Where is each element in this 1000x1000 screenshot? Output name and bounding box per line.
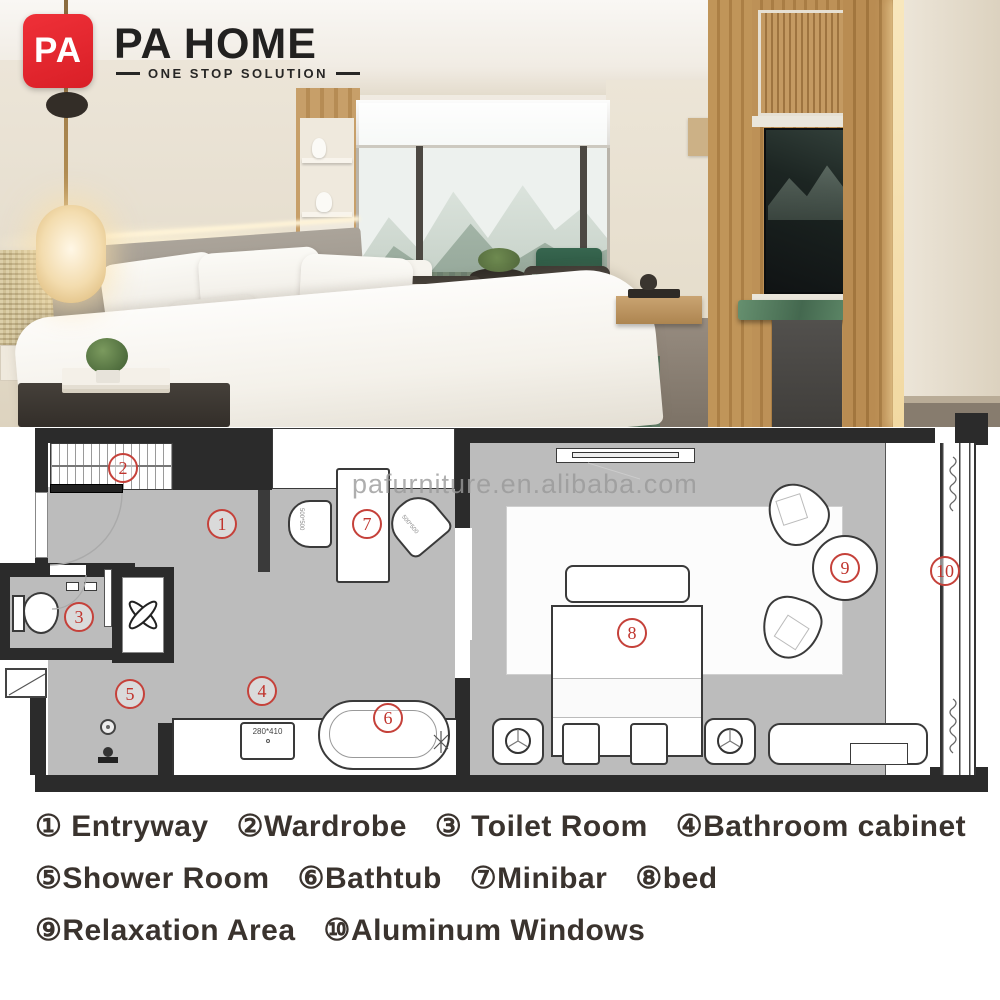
wall-bottom [35,775,940,792]
tagline-dash [336,72,360,75]
floor-shower-head [103,747,113,757]
legend-row-2: ⑤Shower Room ⑥Bathtub ⑦Minibar ⑧bed [35,861,1000,896]
wood-column [843,0,893,427]
wall-top-left [35,428,272,443]
chair-pillow-plan [775,493,808,526]
tv-plan [572,452,679,458]
decor-vase [312,138,326,158]
plan-badge-5: 5 [115,679,145,709]
tea-shelf [616,296,702,324]
brand-tagline-row: ONE STOP SOLUTION [116,66,360,81]
shower-interior [122,577,164,653]
legend-item-aluminum-windows: ⑩Aluminum Windows [324,913,646,948]
legend: ① Entryway ②Wardrobe ③ Toilet Room ④Bath… [0,797,1000,1000]
sink-plan: 280*410 [240,722,295,760]
brand-logo: PA [23,14,93,88]
floor-drain [100,719,116,735]
plan-badge-8: 8 [617,618,647,648]
toilet-shelf-item [66,582,79,591]
legend-item-bathtub: ⑥Bathtub [298,861,442,896]
chair-size-label: 500*500 [400,514,419,535]
bench-tray-plan [850,743,908,765]
sink-drain [266,739,270,743]
passage-opening [455,528,472,640]
plan-badge-10: 10 [930,556,960,586]
shelf-ledge [302,158,352,163]
kettle [640,274,657,290]
decor-vase [316,192,332,212]
toilet-shelf-item [84,582,97,591]
brand-tagline: ONE STOP SOLUTION [148,66,328,81]
legend-row-1: ① Entryway ②Wardrobe ③ Toilet Room ④Bath… [35,809,1000,844]
legend-item-bed: ⑧bed [635,861,717,896]
plan-badge-1: 1 [207,509,237,539]
plan-badge-6: 6 [373,703,403,733]
drain-center [106,725,110,729]
legend-row-3: ⑨Relaxation Area ⑩Aluminum Windows [35,913,1000,948]
minibar-fridge [772,320,842,427]
plan-badge-4: 4 [247,676,277,706]
minibar-chair: 500*500 [288,500,332,548]
shower-head-base [98,757,118,763]
right-wall [904,0,1000,427]
pendant-lamp-canopy [46,92,88,118]
bed-pillow-plan [630,723,668,765]
chair-size-label: 500*500 [298,508,304,530]
aluminum-window-plan [940,443,976,775]
tea-tray [628,289,680,298]
roller-shade [356,100,610,148]
wall-niche [5,668,47,698]
nightstand-plan [492,718,544,765]
wall-left-lower [30,698,46,775]
closet-block [173,443,272,490]
legend-item-shower-room: ⑤Shower Room [35,861,270,896]
partition-wall-lower [455,678,470,775]
entry-door-opening [35,492,48,558]
plant-pot [96,370,120,383]
table-plant [478,248,520,272]
nightstand-plan [704,718,756,765]
logo-monogram: PA [34,31,82,71]
plan-badge-9: 9 [830,553,860,583]
potted-plant [86,338,128,374]
legend-item-relaxation-area: ⑨Relaxation Area [35,913,296,948]
nightstand [18,383,230,427]
led-light-strip [893,0,904,427]
wall-top-right [455,428,935,443]
plan-badge-7: 7 [352,509,382,539]
product-image: PA PA HOME ONE STOP SOLUTION [0,0,1000,1000]
legend-item-minibar: ⑦Minibar [470,861,608,896]
legend-item-entryway: ① Entryway [35,809,209,844]
tagline-dash [116,72,140,75]
toilet-room-left-wall [0,563,10,657]
bed-sheet-fold [553,678,701,718]
brand-name: PA HOME [114,20,514,69]
bed-bench-plan [565,565,690,603]
watermark: pafurniture.en.alibaba.com [352,469,698,500]
sink-size-label: 280*410 [242,727,293,736]
entry-door-leaf [50,484,123,493]
plan-badge-3: 3 [64,602,94,632]
chair-pillow-plan [774,614,810,650]
baseboard [904,396,1000,403]
floor-plan: 500*500 500*500 [0,427,1000,795]
toilet-door-opening [50,565,86,575]
legend-item-bathroom-cabinet: ④Bathroom cabinet [676,809,966,844]
legend-item-toilet-room: ③ Toilet Room [435,809,648,844]
wall-left-upper [35,428,48,492]
bed-pillow-plan [562,723,600,765]
pendant-lamp-shade [36,205,106,303]
wall-corner-top-right [955,413,988,445]
plan-badge-2: 2 [108,453,138,483]
entry-partition-screen [258,490,270,572]
room-photo: PA PA HOME ONE STOP SOLUTION [0,0,1000,427]
legend-item-wardrobe: ②Wardrobe [237,809,407,844]
shower-glass-door [104,569,112,627]
wood-column [708,0,752,427]
